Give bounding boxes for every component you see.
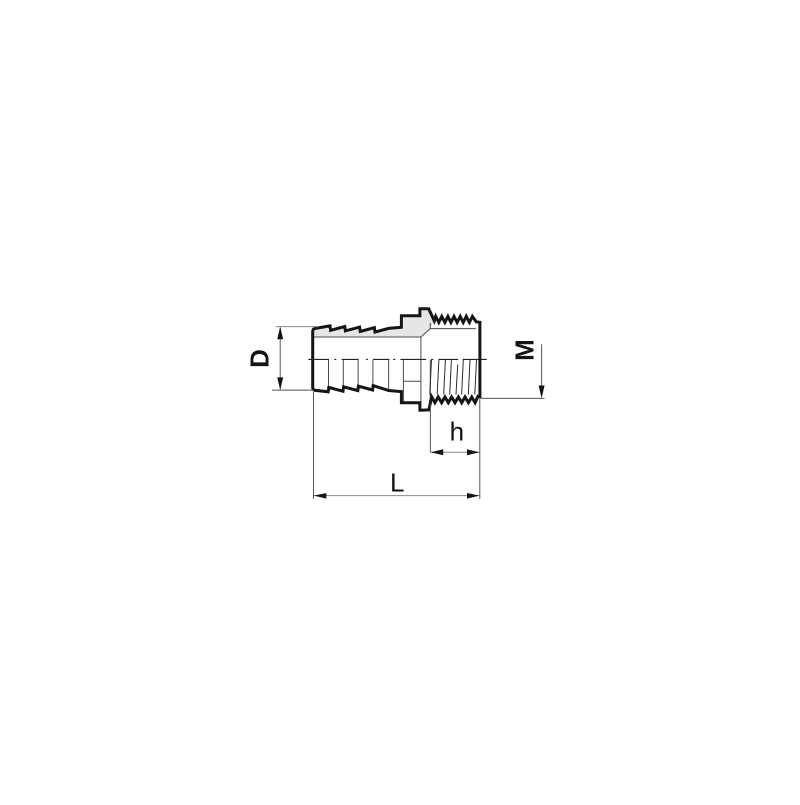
svg-text:M: M bbox=[510, 339, 540, 361]
svg-text:L: L bbox=[390, 468, 404, 498]
svg-text:D: D bbox=[244, 349, 274, 368]
svg-text:h: h bbox=[450, 417, 464, 447]
